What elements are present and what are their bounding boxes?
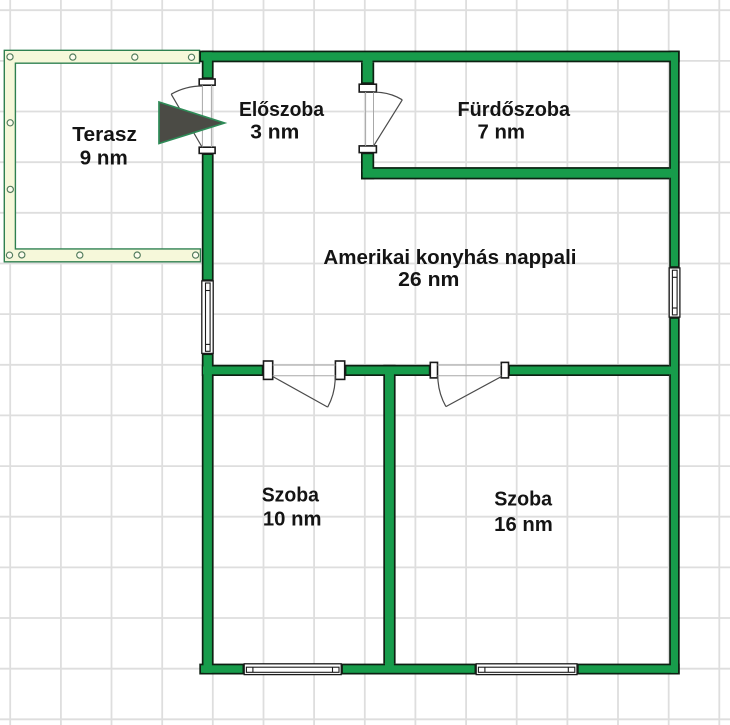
svg-text:26 nm: 26 nm	[398, 269, 459, 291]
svg-text:9 nm: 9 nm	[80, 147, 128, 169]
svg-text:Szoba: Szoba	[262, 484, 320, 506]
svg-text:3 nm: 3 nm	[250, 122, 299, 144]
svg-text:10 nm: 10 nm	[263, 509, 322, 531]
svg-text:Terasz: Terasz	[72, 124, 137, 146]
svg-text:Fürdőszoba: Fürdőszoba	[458, 99, 571, 121]
svg-text:Amerikai konyhás nappali: Amerikai konyhás nappali	[323, 247, 576, 269]
svg-text:7 nm: 7 nm	[478, 122, 526, 144]
svg-text:Szoba: Szoba	[494, 489, 553, 511]
svg-text:Előszoba: Előszoba	[239, 99, 325, 121]
svg-text:16 nm: 16 nm	[494, 514, 553, 536]
